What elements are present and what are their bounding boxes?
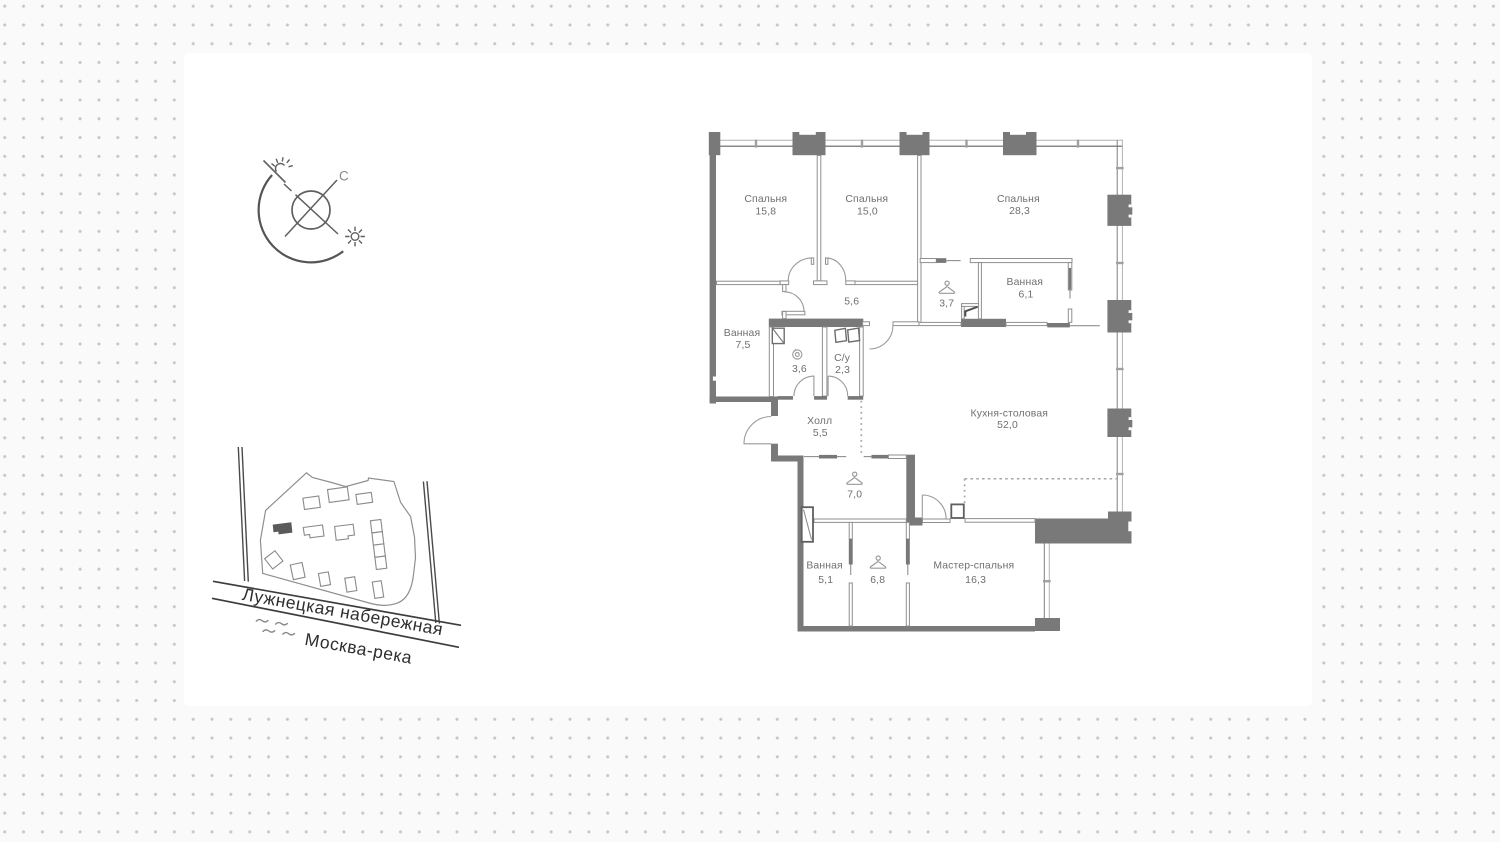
svg-text:Лужнецкая набережная: Лужнецкая набережная — [241, 584, 445, 639]
svg-text:Ванная: Ванная — [724, 328, 761, 339]
svg-text:Ванная: Ванная — [1007, 277, 1044, 288]
svg-text:16,3: 16,3 — [965, 575, 986, 586]
svg-text:C: C — [339, 169, 349, 184]
svg-text:3,7: 3,7 — [939, 299, 954, 310]
svg-text:15,8: 15,8 — [755, 206, 776, 217]
svg-text:3,6: 3,6 — [792, 364, 807, 375]
svg-text:Ванная: Ванная — [806, 560, 843, 571]
svg-text:Кухня-столовая: Кухня-столовая — [971, 408, 1049, 419]
svg-text:Спальня: Спальня — [845, 194, 888, 205]
svg-text:5,6: 5,6 — [844, 296, 859, 307]
svg-text:15,0: 15,0 — [857, 206, 878, 217]
svg-text:5,1: 5,1 — [818, 575, 833, 586]
svg-text:С/у: С/у — [834, 353, 851, 364]
svg-text:Спальня: Спальня — [997, 194, 1040, 205]
svg-text:2,3: 2,3 — [835, 365, 850, 376]
svg-text:Холл: Холл — [807, 416, 832, 427]
svg-text:Мастер-спальня: Мастер-спальня — [933, 560, 1014, 571]
svg-text:7,5: 7,5 — [736, 340, 751, 351]
svg-text:6,1: 6,1 — [1019, 290, 1034, 301]
svg-text:52,0: 52,0 — [997, 420, 1018, 431]
svg-text:28,3: 28,3 — [1009, 206, 1030, 217]
svg-text:6,8: 6,8 — [870, 575, 885, 586]
svg-text:5,5: 5,5 — [813, 428, 828, 439]
svg-text:Спальня: Спальня — [744, 194, 787, 205]
svg-text:7,0: 7,0 — [847, 489, 862, 500]
